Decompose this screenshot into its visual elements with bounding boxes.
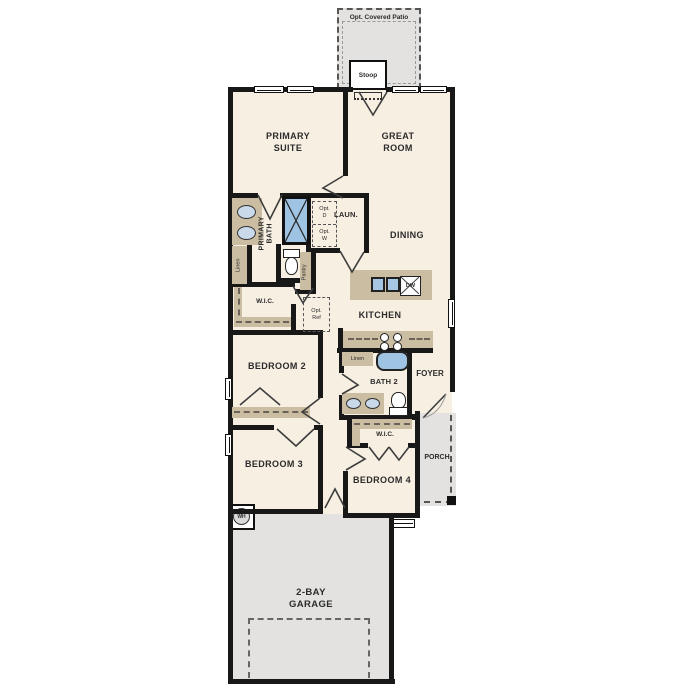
dining-label: DINING — [386, 230, 428, 242]
window — [287, 86, 314, 93]
wall — [343, 513, 420, 518]
wall — [228, 425, 274, 430]
water-heater-label: WH — [237, 514, 245, 520]
dishwasher-label: DW — [400, 281, 421, 291]
cooktop-burner — [380, 342, 389, 351]
island-sink — [371, 277, 385, 292]
bedroom2-closet-shelf — [232, 407, 310, 418]
patio-label: Opt. Covered Patio — [339, 12, 419, 22]
wall — [450, 87, 455, 392]
floor-plan: Opt. Covered Patio Stoop PORCH 2-BAY GAR… — [0, 0, 687, 687]
bedroom2-label: BEDROOM 2 — [237, 361, 317, 373]
window — [254, 86, 284, 93]
opt-washer-label: Opt. W — [312, 227, 337, 244]
great-room-label: GREAT ROOM — [370, 130, 426, 156]
cooktop-burner — [393, 342, 402, 351]
shower-x-icon — [285, 199, 307, 242]
linen-primary-label-wrap: Linen — [229, 247, 248, 284]
wic-bed4-label: W.I.C. — [366, 429, 404, 439]
upper-cabinet-dash — [348, 338, 378, 340]
wall — [343, 87, 348, 176]
wic-bed4-shelf — [352, 419, 412, 429]
bedroom-wing-floor — [230, 332, 322, 512]
upper-cabinet-dash — [409, 338, 430, 340]
shelf-dash — [234, 411, 308, 413]
sink — [365, 398, 380, 409]
wall — [228, 509, 323, 514]
wall — [228, 679, 395, 684]
wall — [415, 411, 420, 518]
opt-fridge-box: Opt. Ref — [303, 297, 330, 332]
pantry-label: Pantry — [301, 264, 308, 280]
linen-bath2-label: Linen — [351, 356, 364, 362]
bedroom4-label: BEDROOM 4 — [343, 475, 421, 487]
primary-suite-label: PRIMARY SUITE — [256, 130, 320, 156]
washer-dryer-divider — [313, 224, 336, 225]
shelf-dash — [354, 423, 410, 425]
window — [448, 299, 455, 328]
opt-fridge-label: Opt. Ref — [311, 308, 321, 321]
bedroom3-label: BEDROOM 3 — [234, 459, 314, 471]
linen-closet-bath2: Linen — [342, 352, 373, 366]
window — [225, 378, 232, 400]
bathtub — [376, 351, 409, 371]
garage-label: 2-BAY GARAGE — [262, 585, 360, 613]
kitchen-label: KITCHEN — [356, 310, 404, 322]
wall — [389, 513, 394, 684]
bath2-label: BATH 2 — [360, 376, 408, 387]
window — [225, 434, 232, 456]
window — [420, 86, 447, 93]
stoop-label: Stoop — [359, 72, 377, 79]
toilet — [389, 407, 408, 416]
shower — [282, 196, 310, 245]
wall — [318, 426, 323, 514]
wall — [318, 330, 323, 398]
stoop-area: Stoop — [349, 60, 387, 90]
cooktop-burner — [380, 333, 389, 342]
wic-primary-shelf-bottom — [234, 317, 291, 327]
window — [392, 86, 419, 93]
rear-step-line — [393, 523, 413, 524]
wic-primary-label: W.I.C. — [246, 296, 284, 307]
entry-step — [354, 92, 382, 100]
pantry-label-wrap: Pantry — [297, 253, 312, 291]
shelf-dash — [236, 321, 289, 323]
primary-bath-label-wrap: PRIMARY BATH — [251, 202, 283, 264]
porch-label: PORCH — [420, 452, 454, 463]
linen-primary-label: Linen — [235, 259, 242, 272]
primary-bath-label: PRIMARY BATH — [259, 216, 276, 250]
cooktop-burner — [393, 333, 402, 342]
porch-column — [447, 496, 456, 505]
island-sink — [386, 277, 400, 292]
rear-step — [391, 519, 415, 528]
wall — [314, 425, 323, 430]
garage-door-dashed — [248, 618, 370, 678]
foyer-label: FOYER — [410, 368, 450, 379]
wall — [364, 196, 369, 253]
laundry-label: LAUN. — [328, 209, 364, 220]
sink — [346, 398, 361, 409]
